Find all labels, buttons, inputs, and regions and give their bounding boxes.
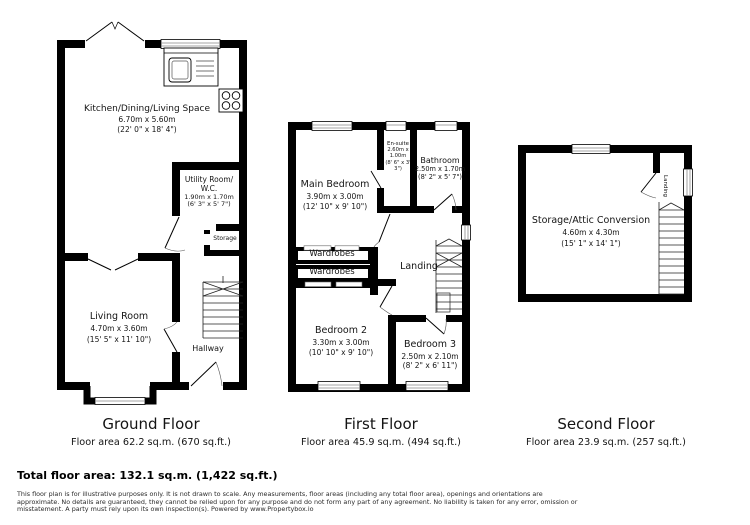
room-label-living-name: Living Room [90, 312, 148, 323]
room-label-kitchen-imperial: (22' 0" x 18' 4") [117, 126, 176, 135]
room-label-landing-second: Landing [662, 169, 668, 203]
disclaimer-text: This floor plan is for illustrative purp… [17, 491, 577, 514]
room-label-bathroom-name: Bathroom [420, 156, 459, 165]
room-label-kitchen-metric: 6.70m x 5.60m [118, 116, 175, 125]
floor-title-first: First Floor [344, 416, 418, 433]
floor-title-ground: Ground Floor [102, 416, 199, 433]
room-label-wardrobes-2: Wardrobes [309, 268, 354, 278]
room-label-living-metric: 4.70m x 3.60m [90, 325, 147, 334]
room-label-landing-first: Landing [400, 262, 438, 273]
room-label-utility-imperial: (6' 3" x 5' 7") [187, 201, 230, 208]
room-label-living-imperial: (15' 5" x 11' 10") [87, 336, 151, 345]
room-label-bedroom2-imperial: (10' 10" x 9' 10") [309, 349, 373, 358]
room-label-bathroom-imperial: (8' 2" x 5' 7") [418, 174, 462, 182]
room-label-ensuite-metric: 2.60m x 1.00m [385, 148, 411, 160]
room-label-attic-metric: 4.60m x 4.30m [562, 229, 619, 238]
room-label-bedroom2-name: Bedroom 2 [315, 326, 367, 337]
total-floor-area: Total floor area: 132.1 sq.m. (1,422 sq.… [17, 470, 278, 483]
room-label-kitchen-name: Kitchen/Dining/Living Space [84, 104, 210, 114]
room-label-main-bedroom-imperial: (12' 10" x 9' 10") [303, 203, 367, 212]
room-label-storage: Storage [213, 236, 236, 243]
floor-area-ground: Floor area 62.2 sq.m. (670 sq.ft.) [71, 437, 231, 448]
room-label-wardrobes-1: Wardrobes [309, 250, 354, 260]
floor-title-second: Second Floor [557, 416, 654, 433]
room-label-attic-name: Storage/Attic Conversion [532, 216, 650, 227]
disclaimer-line-3: misstatement. A party must rely upon its… [17, 506, 577, 514]
floor-area-first: Floor area 45.9 sq.m. (494 sq.ft.) [301, 437, 461, 448]
floor-area-second: Floor area 23.9 sq.m. (257 sq.ft.) [526, 437, 686, 448]
room-label-ensuite-imperial: (8' 6" x 3' 3") [384, 161, 412, 173]
room-label-bedroom3-name: Bedroom 3 [404, 340, 456, 351]
room-label-attic-imperial: (15' 1" x 14' 1") [561, 240, 620, 249]
room-label-bedroom2-metric: 3.30m x 3.00m [312, 339, 369, 348]
room-label-bedroom3-imperial: (8' 2" x 6' 11") [403, 362, 458, 371]
floorplan-page: { "colors": { "wall": "#000000", "backgr… [0, 0, 750, 525]
room-label-hallway: Hallway [192, 344, 224, 353]
room-label-main-bedroom-metric: 3.90m x 3.00m [306, 193, 363, 202]
room-label-main-bedroom-name: Main Bedroom [301, 180, 370, 191]
